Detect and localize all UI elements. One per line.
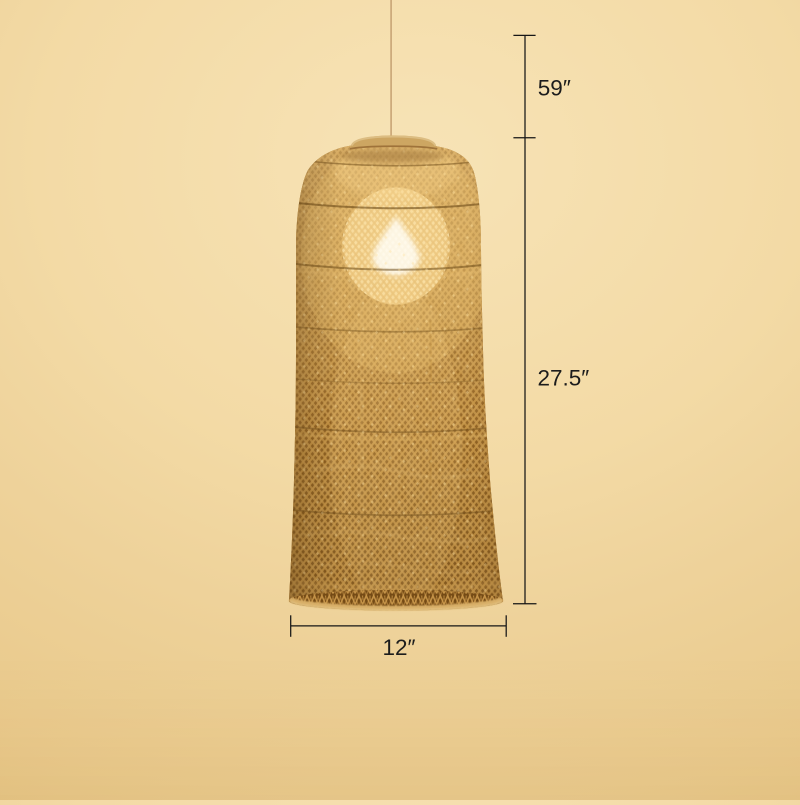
svg-text:59″: 59″ — [538, 76, 571, 101]
svg-text:27.5″: 27.5″ — [538, 365, 590, 390]
svg-text:12″: 12″ — [383, 635, 416, 660]
